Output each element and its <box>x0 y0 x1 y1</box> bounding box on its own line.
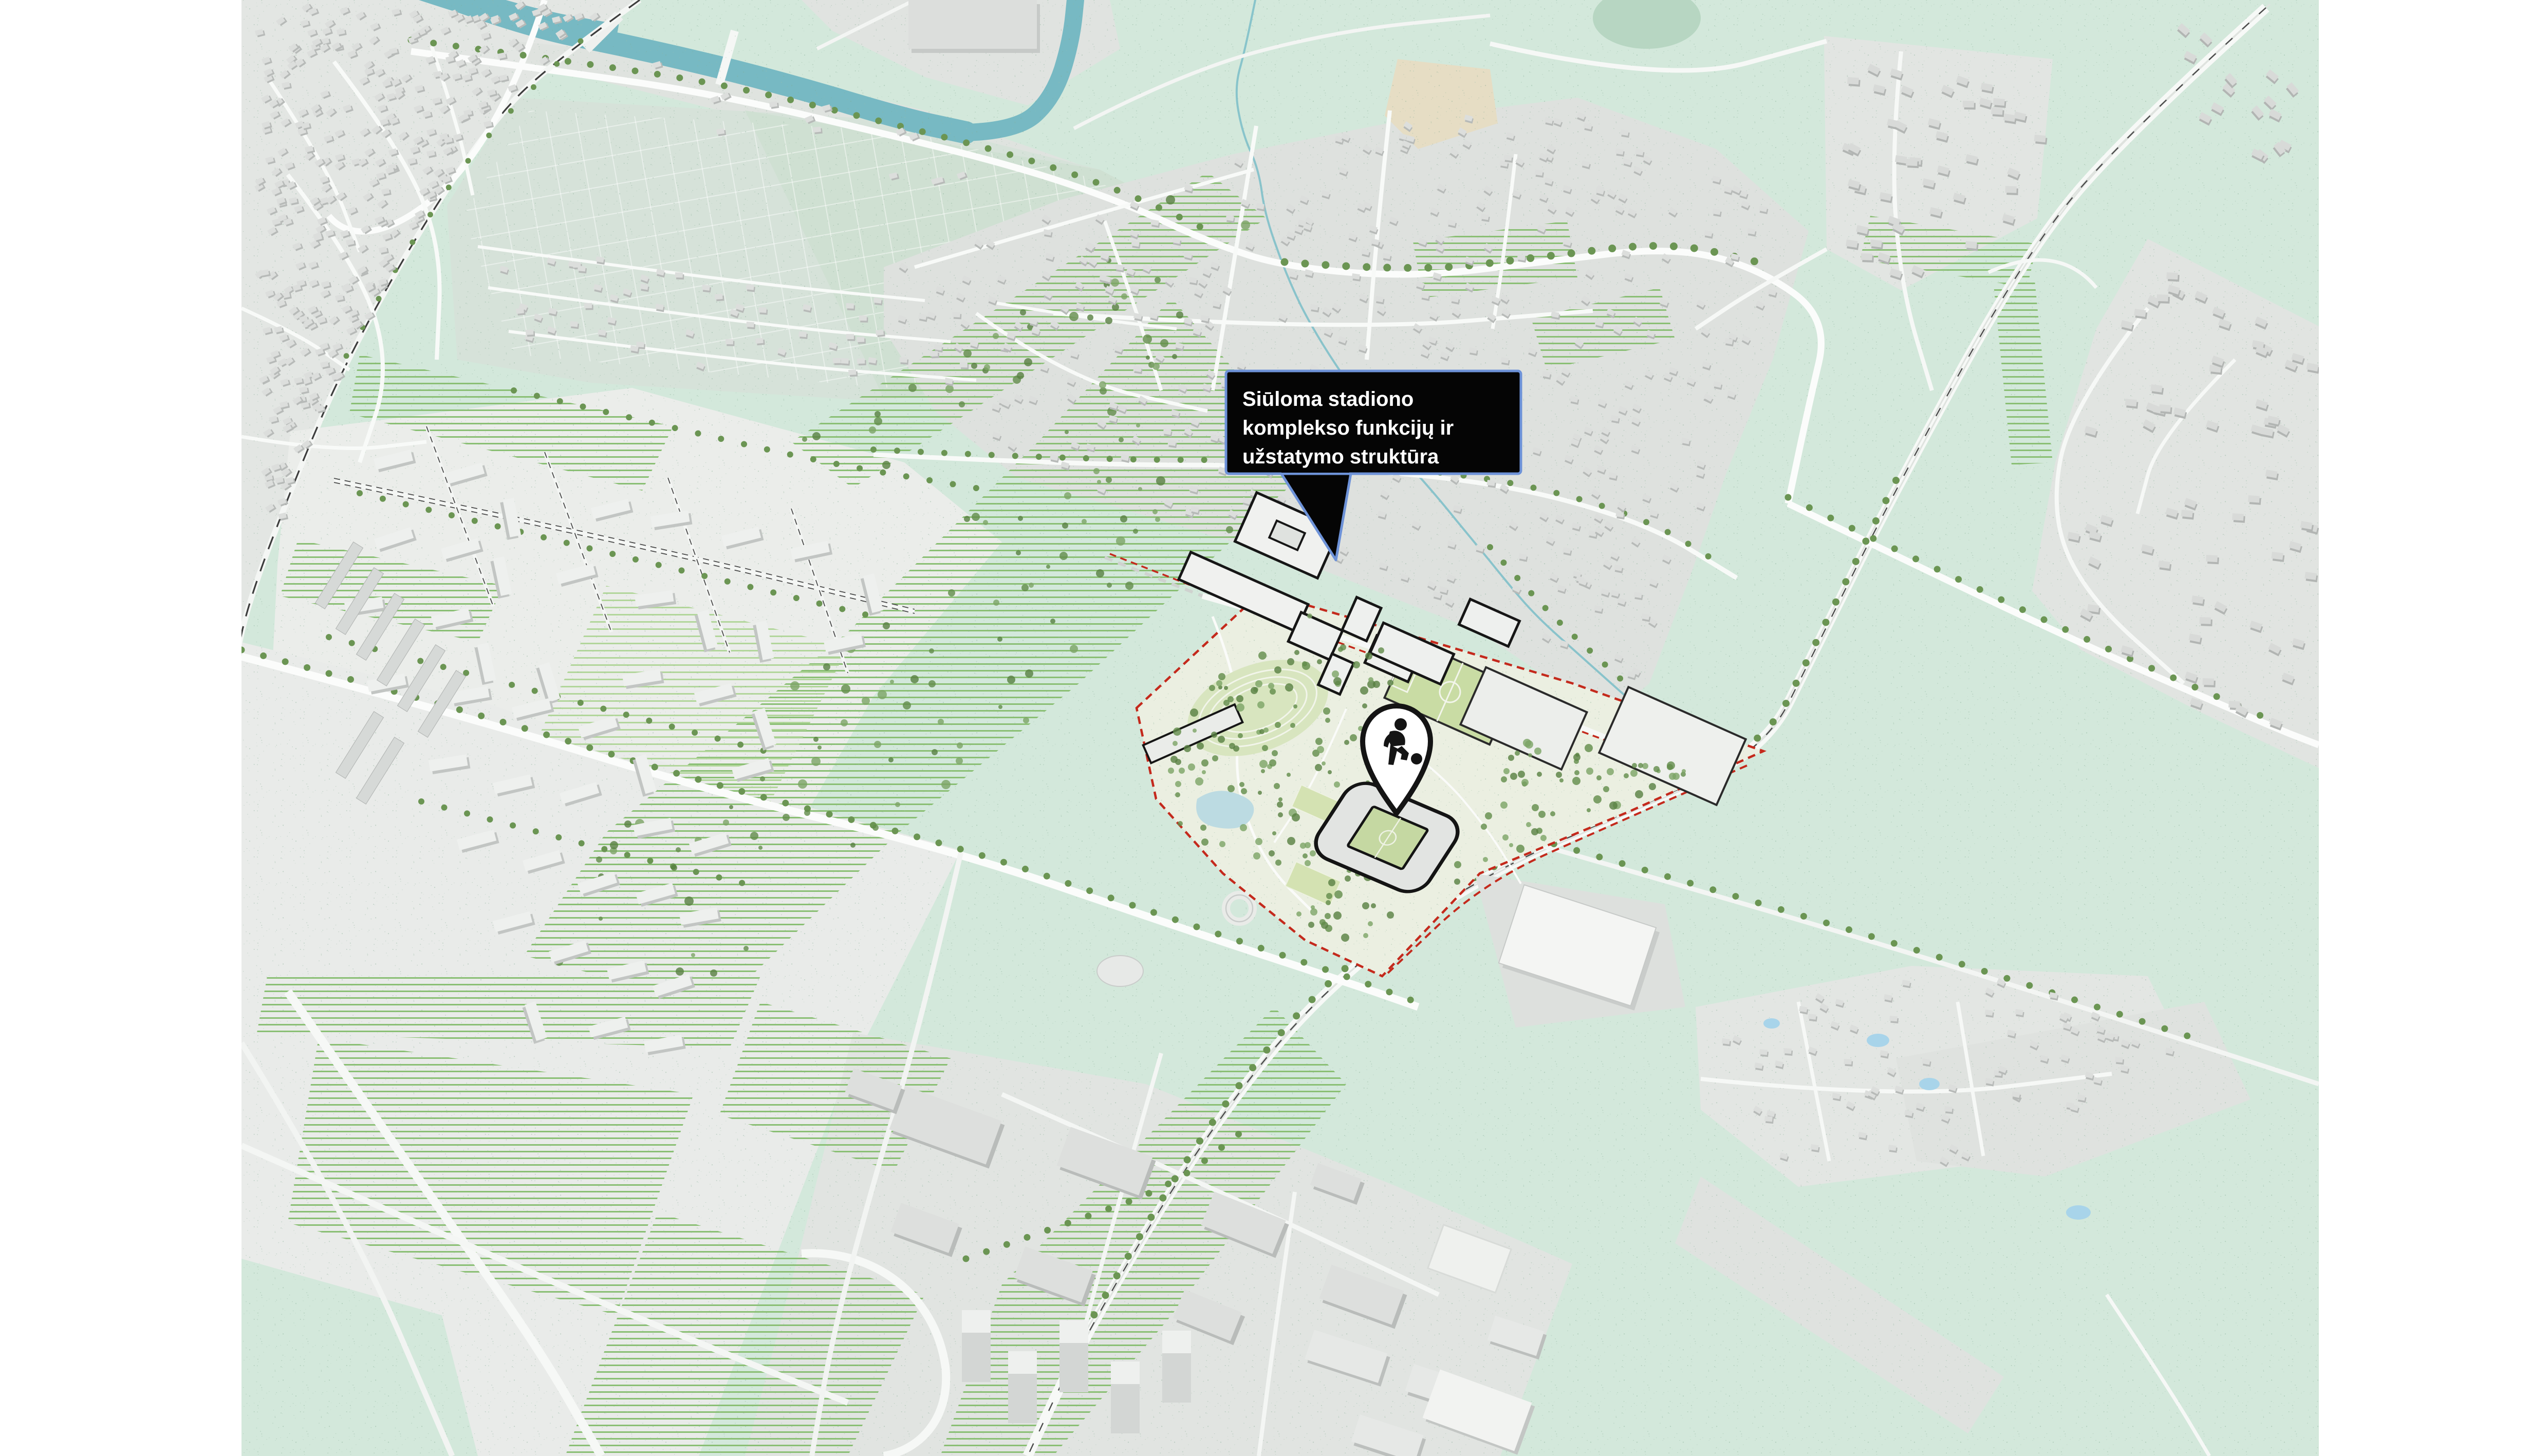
svg-text:Siūloma stadiono: Siūloma stadiono <box>1242 388 1414 410</box>
svg-text:užstatymo struktūra: užstatymo struktūra <box>1242 445 1439 468</box>
svg-text:komplekso funkcijų ir: komplekso funkcijų ir <box>1242 417 1454 439</box>
